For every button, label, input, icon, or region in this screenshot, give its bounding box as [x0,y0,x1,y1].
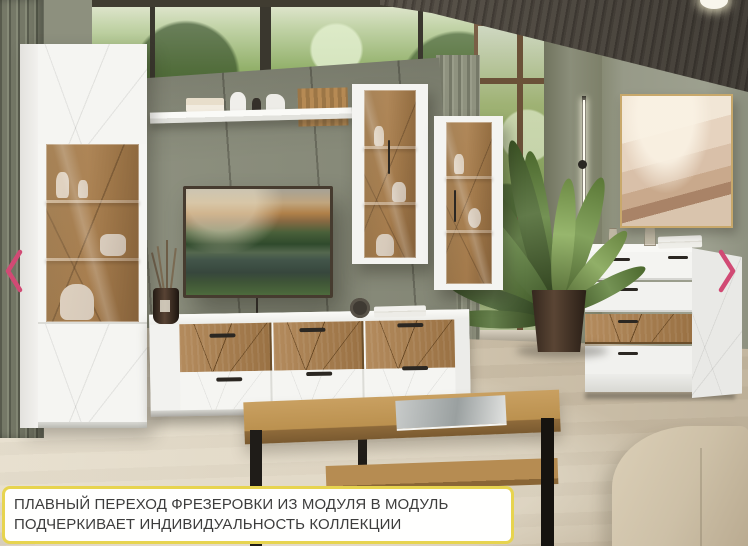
wall-light-knob [578,160,587,169]
round-decor [350,298,370,318]
glass-door [446,122,492,284]
glass-door [364,90,416,258]
cabinet-side [20,44,38,428]
glass-door [46,144,139,322]
display-cabinet [20,44,147,428]
sofa-seam [700,448,702,546]
caption-line-2: ПОДЧЕРКИВАЕТ ИНДИВИДУАЛЬНОСТЬ КОЛЛЕКЦИИ [14,515,502,535]
drawer-handle [668,256,688,259]
chevron-left-icon[interactable] [3,248,25,294]
drawer-handle [209,333,235,337]
furniture-showroom-photo: ПЛАВНЫЙ ПЕРЕХОД ФРЕЗЕРОВКИ ИЗ МОДУЛЯ В М… [0,0,748,546]
drawer-handle [402,366,428,370]
oak-drawer [179,323,272,373]
chest-drawer-3-oak [585,314,692,344]
drawer-handle [397,323,423,327]
wall-artwork [620,94,733,228]
drawer-handle [306,372,332,376]
vase-label [160,300,170,312]
window-transom [478,78,548,84]
tv-screen [183,186,333,298]
caption-box: ПЛАВНЫЙ ПЕРЕХОД ФРЕЗЕРОВКИ ИЗ МОДУЛЯ В М… [2,486,514,544]
drawer-handle [618,352,638,355]
drawer-handle [216,377,242,381]
dried-twig [166,240,168,294]
book-stack [374,305,426,317]
magazine [395,395,506,431]
drawer-handle [299,328,325,332]
plant-pot [528,290,590,352]
door-handle [454,190,456,222]
wall-cabinet-left [352,84,428,264]
cabinet-top-panel [38,44,147,144]
table-leg [541,418,554,546]
cabinet-plinth [38,422,147,428]
shelf-vase [230,92,246,112]
book-stack [658,235,702,249]
cabinet-bottom-panel [38,322,147,422]
chest-base [585,374,692,392]
stand-left-cap [149,324,180,411]
wall-cabinet-right [434,116,503,290]
chevron-right-icon[interactable] [716,248,738,294]
caption-line-1: ПЛАВНЫЙ ПЕРЕХОД ФРЕЗЕРОВКИ ИЗ МОДУЛЯ В М… [14,495,502,515]
drawer-handle [618,320,638,323]
door-handle [388,140,390,174]
